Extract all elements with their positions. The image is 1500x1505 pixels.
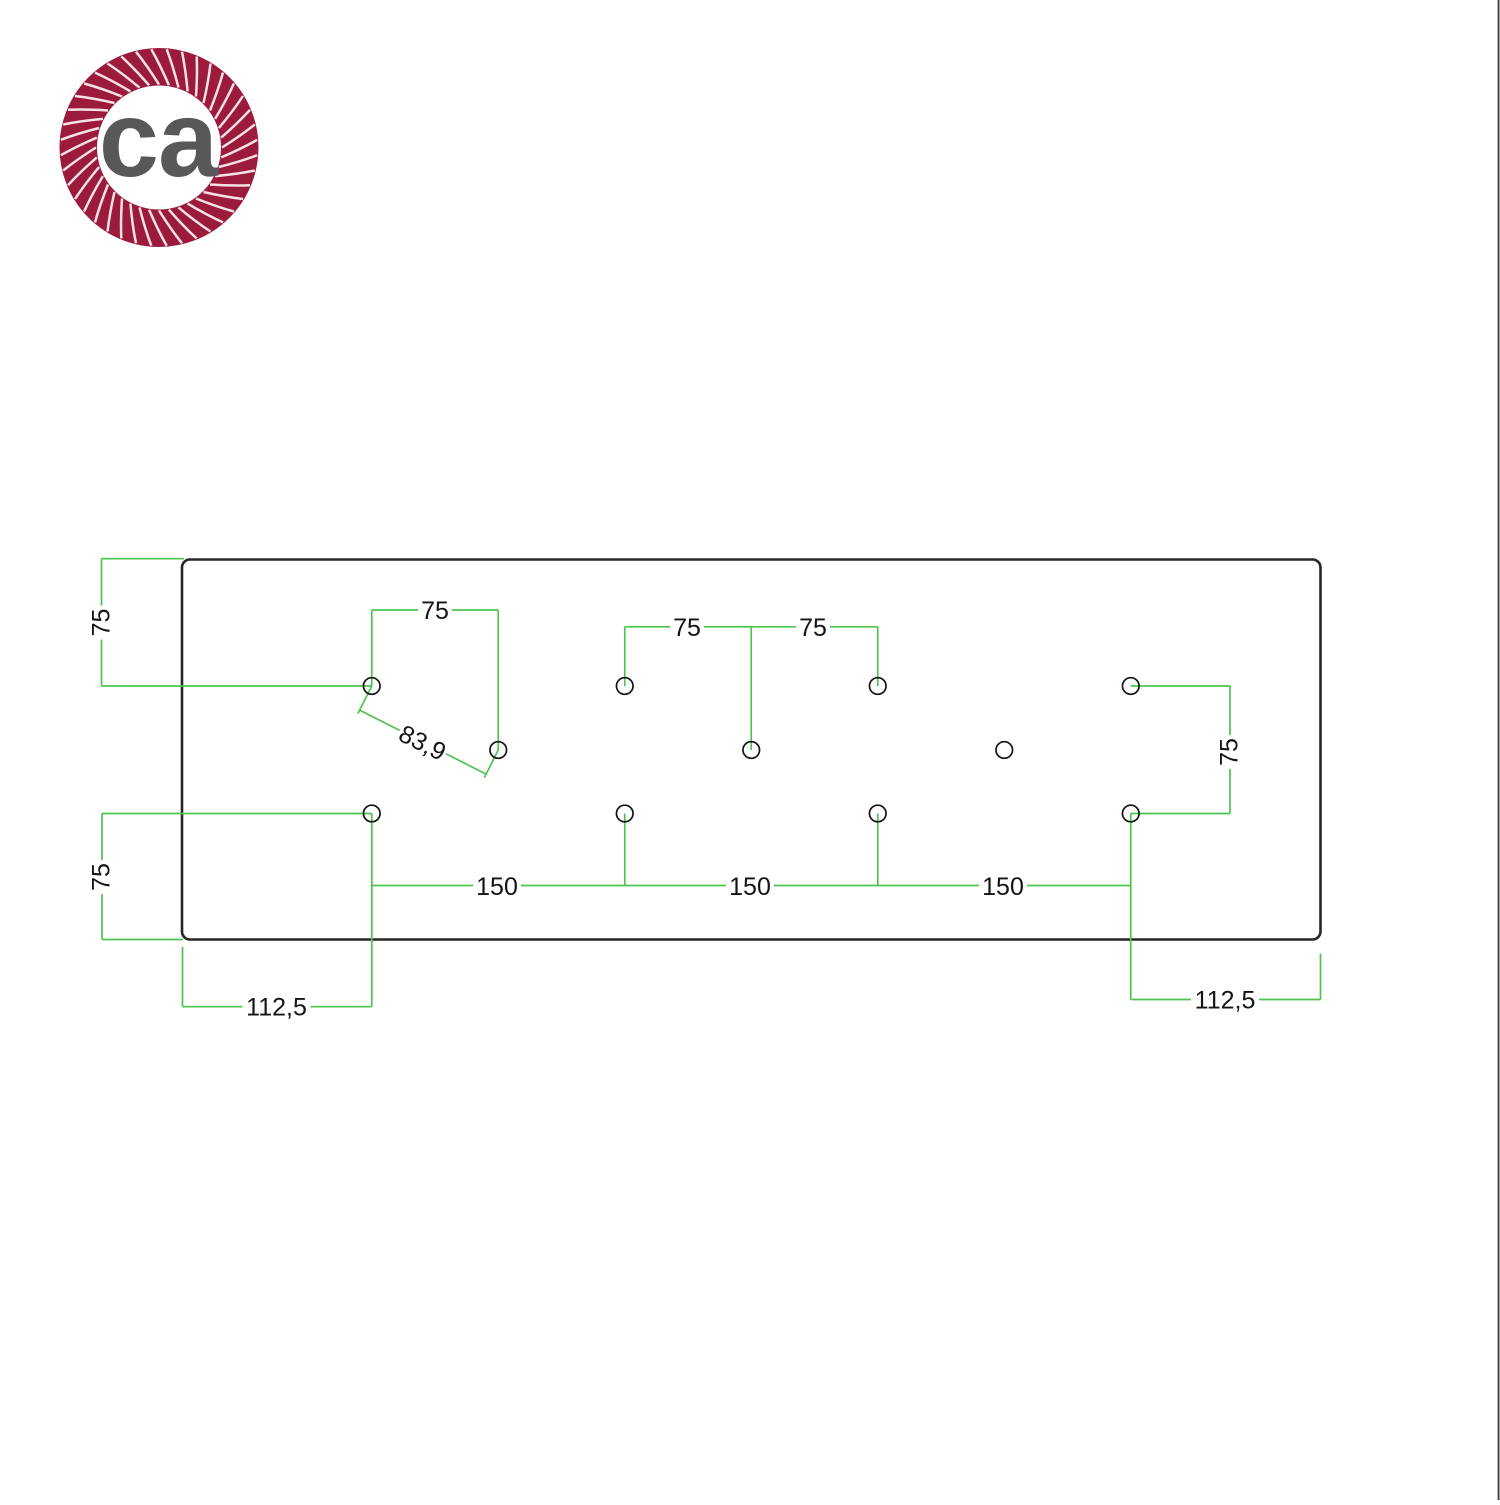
svg-text:75: 75 xyxy=(1216,738,1244,766)
svg-text:150: 150 xyxy=(729,873,771,901)
svg-text:ca: ca xyxy=(99,78,219,199)
svg-text:75: 75 xyxy=(799,614,827,642)
svg-text:75: 75 xyxy=(673,614,701,642)
svg-text:150: 150 xyxy=(476,873,518,901)
svg-text:75: 75 xyxy=(421,597,449,625)
svg-text:112,5: 112,5 xyxy=(246,994,307,1022)
svg-text:112,5: 112,5 xyxy=(1195,987,1256,1015)
svg-text:150: 150 xyxy=(982,873,1024,901)
svg-text:75: 75 xyxy=(88,863,116,891)
svg-text:75: 75 xyxy=(88,609,116,637)
